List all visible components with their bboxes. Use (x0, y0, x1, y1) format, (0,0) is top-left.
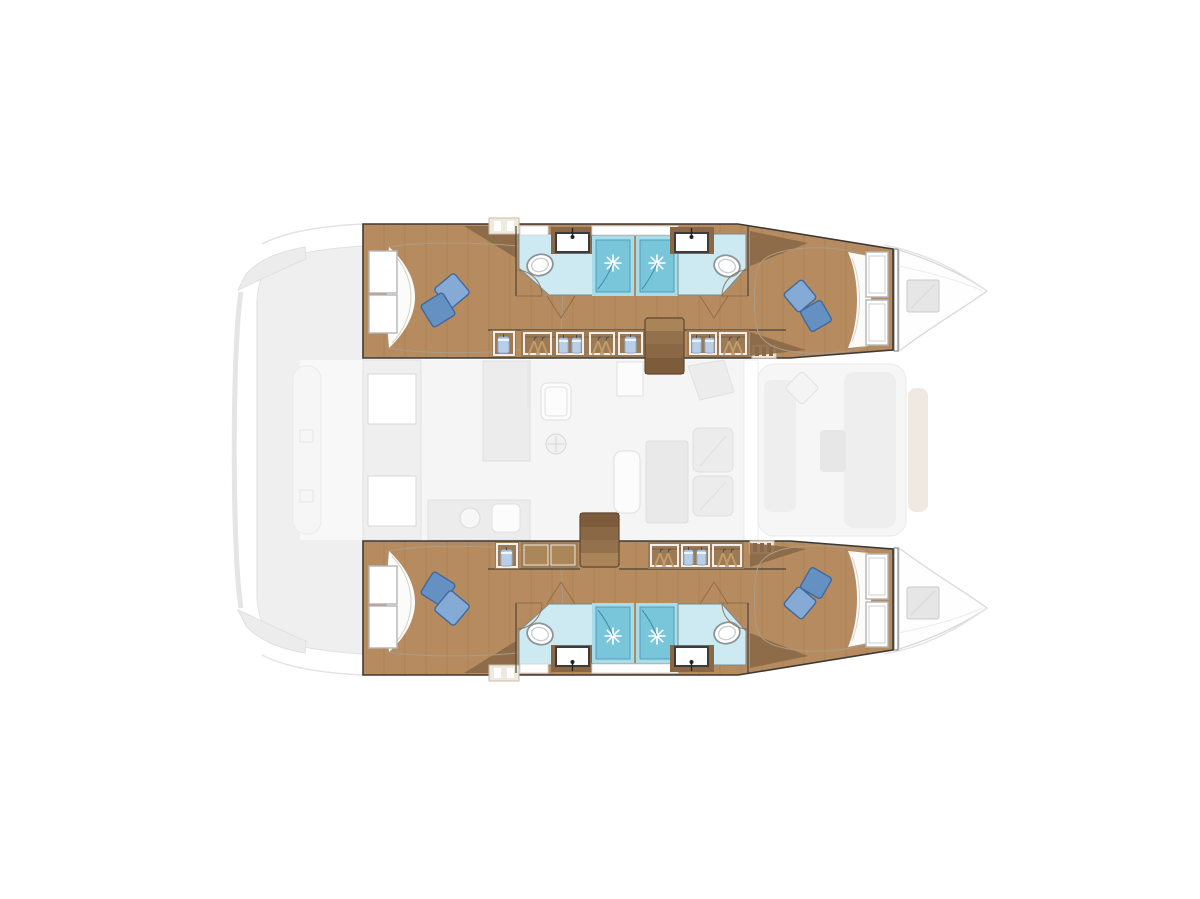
saloon-cabinet (617, 362, 643, 396)
saloon-chair-1 (693, 428, 733, 472)
vent-slat (494, 668, 501, 678)
lounge-cushion-left (764, 380, 796, 512)
vent-slat (507, 668, 514, 678)
shirt-icon (498, 334, 509, 353)
cockpit-bench (293, 366, 321, 534)
galley-counter (483, 361, 530, 461)
hull-window (520, 664, 548, 673)
headboard-shelf (369, 566, 397, 604)
stair-step (580, 553, 619, 567)
stair-step (580, 527, 619, 540)
stair-step (645, 358, 684, 374)
stair-step (645, 331, 684, 344)
galley-round-fixture (460, 508, 480, 528)
headboard-shelf (369, 606, 397, 648)
ghost-aft-deck (234, 224, 363, 675)
galley-square-fixture (492, 504, 520, 532)
deck-edge-bottom (262, 655, 363, 675)
vent-slat (507, 221, 514, 231)
stair-step (580, 540, 619, 553)
dinette-table (646, 441, 688, 523)
cabinet-panel (551, 545, 575, 565)
davit-arc (234, 292, 241, 608)
forward-beam (908, 388, 928, 512)
lounge-table (820, 430, 846, 472)
ghost-saloon (363, 360, 758, 540)
mast-post (527, 360, 531, 410)
shirt-icon (625, 334, 636, 353)
stairs-icon (645, 318, 684, 374)
saloon-door-window-bottom (368, 476, 416, 526)
lounge-cushion-right (844, 372, 896, 528)
saloon-door-window-top (368, 374, 416, 424)
cabinet-panel (524, 545, 548, 565)
hull-window (520, 226, 548, 235)
dinette-bench (614, 451, 640, 513)
floor-plan-page (0, 0, 1200, 899)
hull-window (592, 664, 678, 673)
floor-plan-canvas (0, 0, 1200, 899)
hull-window (592, 226, 678, 235)
stair-step (645, 344, 684, 358)
saloon-forward-wall (744, 360, 758, 540)
ghost-forward-lounge (758, 364, 928, 536)
stair-step (580, 513, 619, 527)
shirt-icon (501, 547, 512, 566)
port-hull (363, 218, 893, 374)
headboard-shelf (369, 251, 397, 293)
stairs-icon (580, 513, 619, 567)
headboard-shelf (369, 295, 397, 333)
port-bow-bulkhead (894, 249, 898, 351)
vent-slat (494, 221, 501, 231)
stair-step (645, 318, 684, 331)
deck-edge-top (262, 224, 363, 244)
vent-locker (489, 218, 519, 234)
starboard-bow-bulkhead (894, 548, 898, 650)
vent-locker (489, 665, 519, 681)
